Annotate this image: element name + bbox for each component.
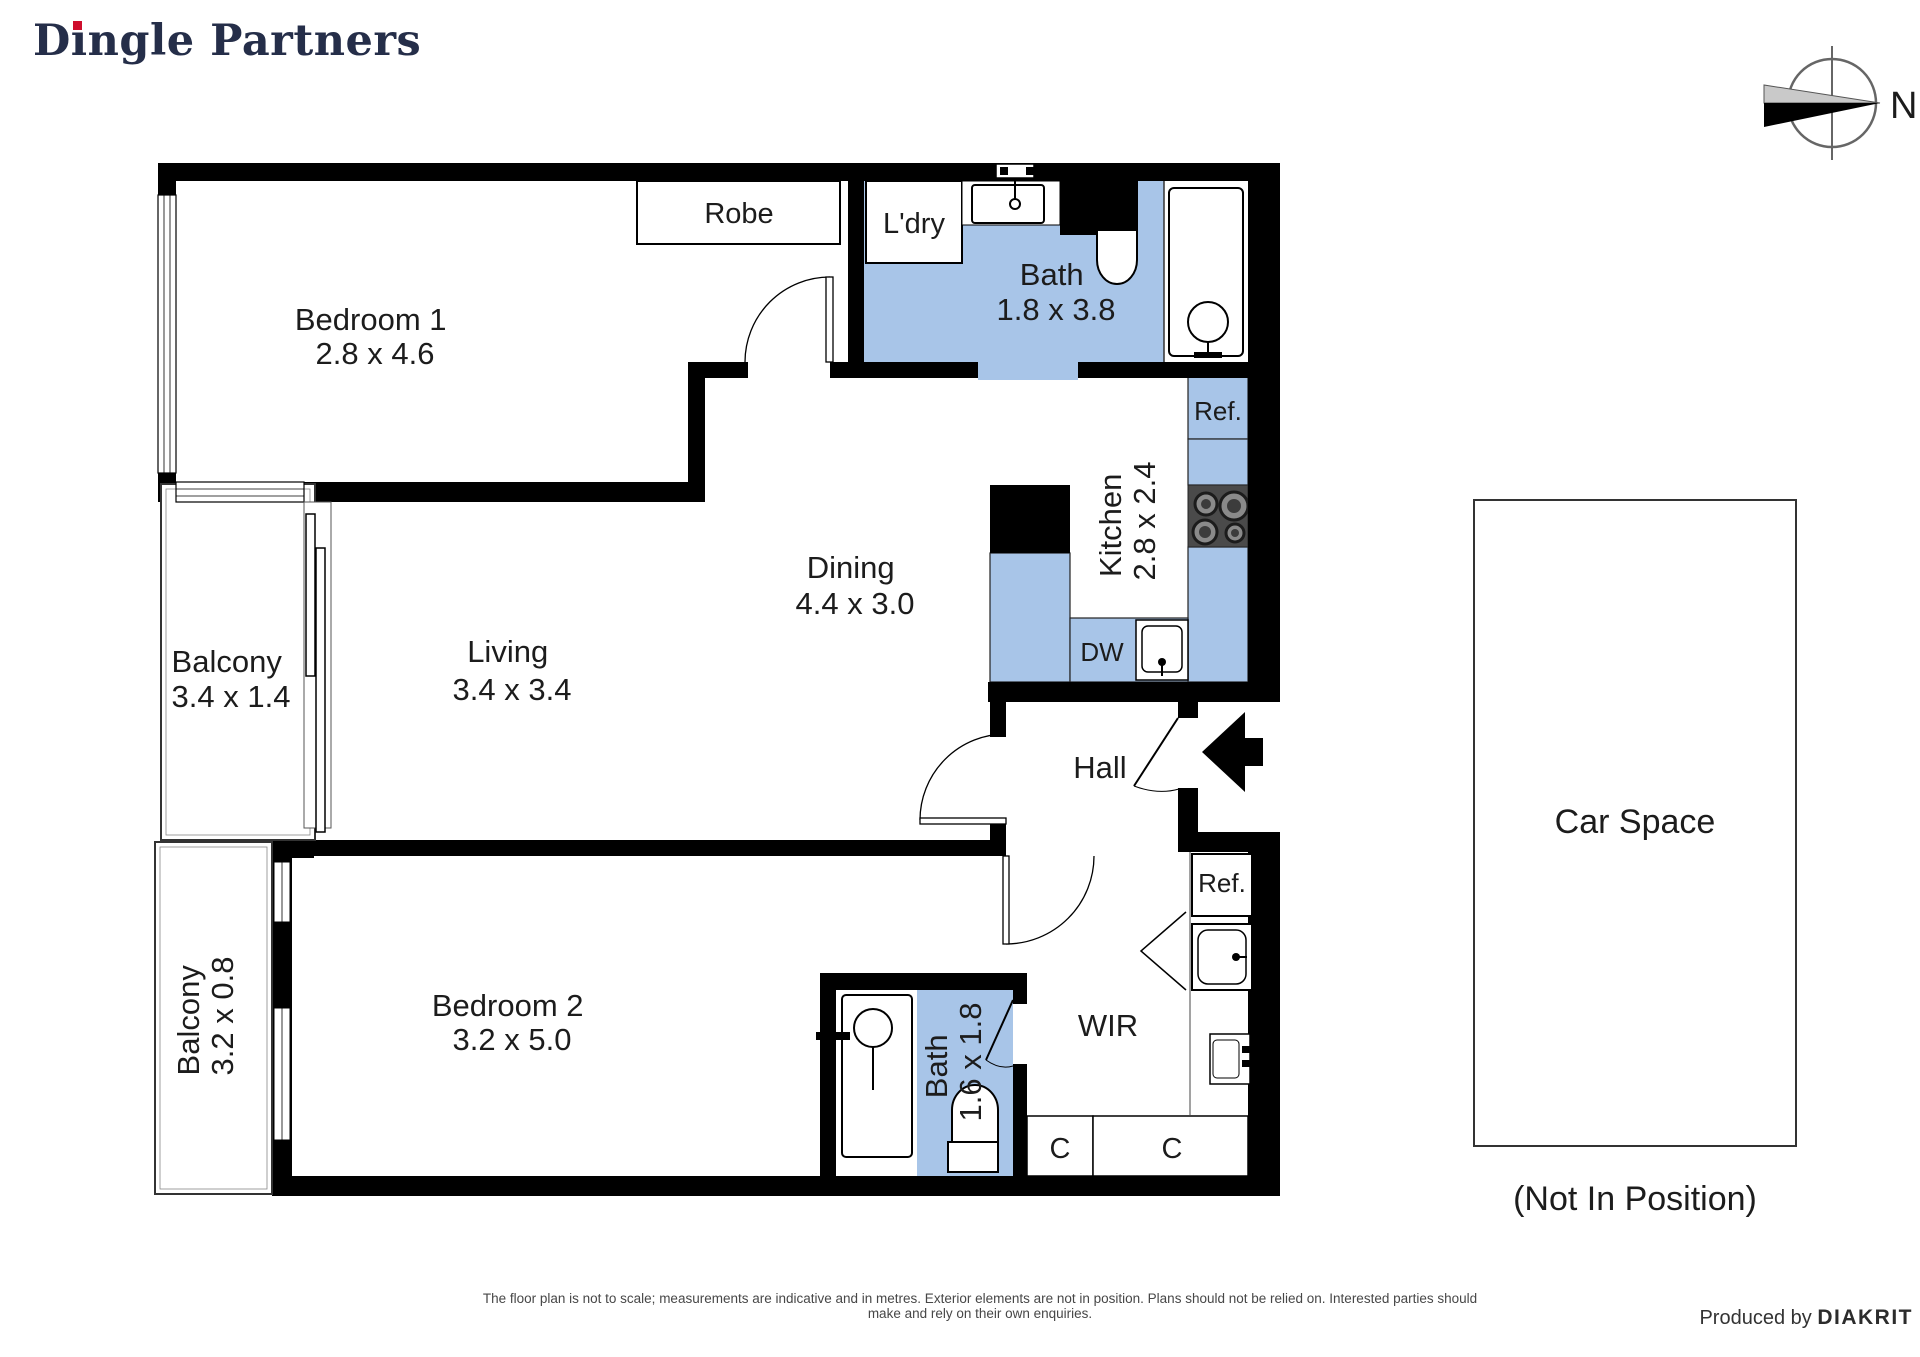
fridge2-label: Ref. xyxy=(1198,868,1246,898)
robe-label: Robe xyxy=(704,198,773,230)
bath1-shower-icon xyxy=(1164,181,1256,362)
floorplan-page: Dıngle Partners xyxy=(0,0,1920,1357)
car-space-caption: (Not In Position) xyxy=(1513,1180,1757,1218)
car-space-label: Car Space xyxy=(1555,803,1716,841)
wir-label: WIR xyxy=(1078,1008,1138,1043)
laundry-label: L'dry xyxy=(883,208,945,240)
hall-label: Hall xyxy=(1073,750,1126,785)
bedroom1-door xyxy=(745,277,833,362)
dining-label: Dining 4.4 x 3.0 xyxy=(796,550,915,621)
entry-arrow-icon xyxy=(1202,712,1263,792)
entry-door xyxy=(1134,718,1179,791)
compass-icon: N xyxy=(1764,46,1917,160)
bedroom1-label: Bedroom 1 2.8 x 4.6 xyxy=(295,302,455,371)
kitchen-sink-icon xyxy=(1136,620,1188,680)
wir-vanity-icon xyxy=(1210,1034,1250,1084)
kitchen-label: Kitchen 2.8 x 2.4 xyxy=(1093,462,1162,581)
bath1-toilet-icon xyxy=(1097,230,1137,284)
produced-by-text: Produced by xyxy=(1699,1307,1817,1329)
bedroom2-door xyxy=(1003,856,1094,944)
bedroom2-label: Bedroom 2 3.2 x 5.0 xyxy=(432,988,592,1057)
cooktop-icon xyxy=(1188,485,1248,547)
cupboard1-label: C xyxy=(1050,1133,1071,1165)
dishwasher-label: DW xyxy=(1080,637,1124,667)
wir-door xyxy=(1141,912,1186,990)
living-label: Living 3.4 x 3.4 xyxy=(453,634,572,707)
hall-door xyxy=(920,734,1006,824)
cupboard2-label: C xyxy=(1162,1133,1183,1165)
producer-name: DIAKRIT xyxy=(1817,1306,1913,1329)
producer-credit: Produced by DIAKRIT xyxy=(1640,1306,1913,1330)
balcony2-label: Balcony 3.2 x 0.8 xyxy=(171,957,240,1076)
living-sliding-door xyxy=(304,502,331,832)
balcony1-label: Balcony 3.4 x 1.4 xyxy=(172,644,291,714)
compass-north-label: N xyxy=(1890,85,1917,127)
disclaimer-text: The floor plan is not to scale; measurem… xyxy=(480,1291,1480,1321)
fridge1-label: Ref. xyxy=(1194,396,1242,426)
bedroom1-window-left xyxy=(158,195,176,473)
balcony1-window-top xyxy=(176,482,304,502)
floorplan-drawing: N Bedroom 1 2.8 x 4.6 Living 3.4 x 3.4 D… xyxy=(0,0,1920,1357)
wir-sink-icon xyxy=(1192,924,1252,990)
